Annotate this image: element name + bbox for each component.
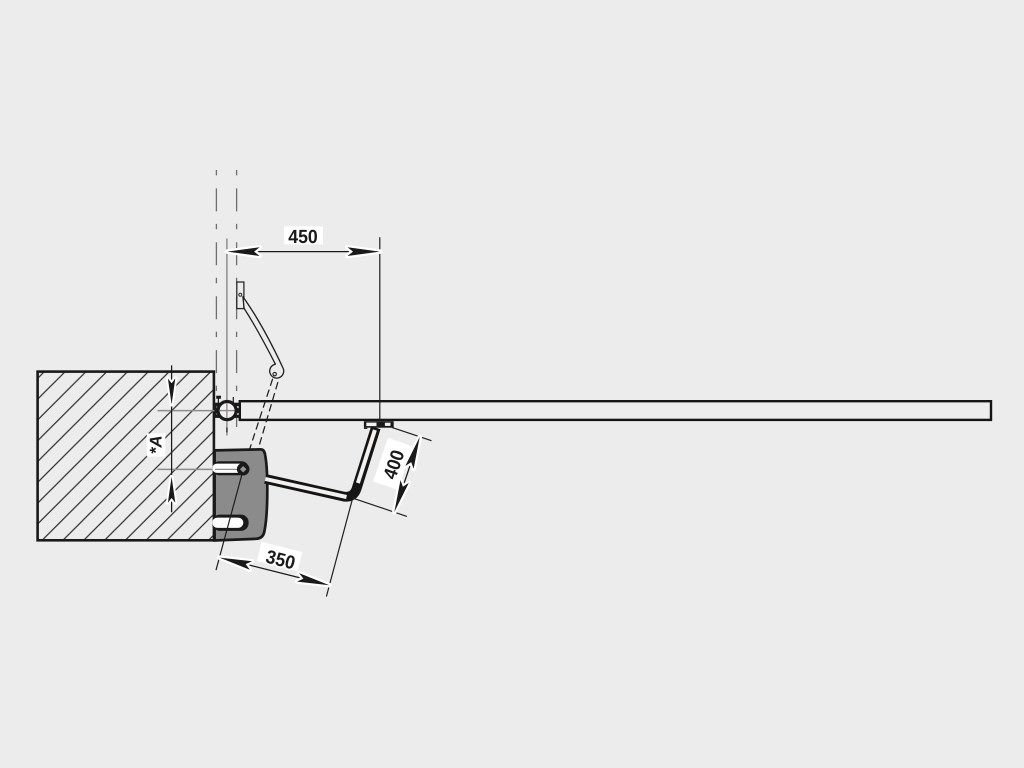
svg-text:*A: *A <box>147 435 166 454</box>
svg-text:450: 450 <box>288 227 317 248</box>
